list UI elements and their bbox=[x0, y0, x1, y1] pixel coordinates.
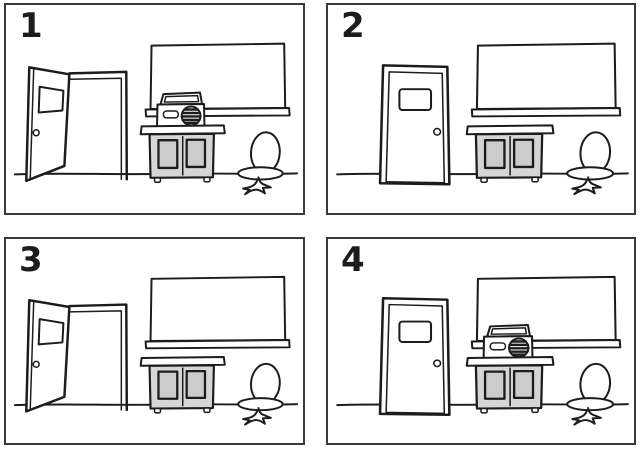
panel-4: 4 bbox=[326, 237, 636, 445]
cabinet-foot-left bbox=[155, 178, 161, 182]
doorknob bbox=[33, 130, 39, 136]
door-open bbox=[26, 67, 126, 180]
doorway-frame-outer bbox=[69, 72, 126, 179]
cabinet bbox=[467, 125, 554, 182]
cabinet-door-right bbox=[187, 140, 205, 167]
door-open bbox=[26, 300, 126, 411]
cabinet-door-left bbox=[158, 372, 177, 399]
cabinet-foot-left bbox=[481, 178, 487, 182]
panel-number: 3 bbox=[19, 241, 43, 280]
door-window bbox=[399, 322, 431, 342]
cabinet-door-left bbox=[158, 140, 177, 168]
doorway-frame-inner bbox=[69, 78, 121, 179]
tape-player bbox=[484, 325, 533, 360]
chalkboard-surface bbox=[477, 44, 616, 109]
panel-2: 2 bbox=[326, 3, 636, 215]
panel-number: 4 bbox=[341, 241, 365, 280]
cabinet-door-right bbox=[514, 371, 533, 398]
chalk-tray bbox=[472, 108, 620, 116]
cabinet-foot-left bbox=[481, 409, 487, 413]
panel-3: 3 bbox=[4, 237, 305, 445]
door-window bbox=[39, 319, 64, 344]
scene-drawing bbox=[6, 239, 303, 443]
cabinet-foot-right bbox=[532, 177, 538, 181]
panel-number: 2 bbox=[341, 7, 365, 46]
panel-number: 1 bbox=[19, 7, 43, 46]
cabinet-door-left bbox=[485, 372, 504, 399]
chair-seat bbox=[238, 167, 283, 179]
panel-1: 1 bbox=[4, 3, 305, 215]
cassette-slot bbox=[490, 343, 505, 350]
doorknob bbox=[434, 129, 441, 136]
swivel-chair bbox=[567, 363, 613, 425]
cabinet bbox=[141, 357, 225, 413]
chair-seat bbox=[567, 167, 613, 179]
doorknob bbox=[434, 360, 441, 366]
door-closed bbox=[380, 65, 449, 184]
cabinet-foot-right bbox=[532, 408, 538, 412]
chalk-tray bbox=[146, 340, 290, 348]
cabinet-foot-left bbox=[155, 409, 161, 413]
tape-player bbox=[157, 93, 205, 129]
swivel-chair bbox=[238, 363, 283, 425]
door-window bbox=[399, 89, 431, 110]
worksheet-figure: 1 bbox=[0, 0, 640, 453]
chair-seat bbox=[238, 398, 283, 410]
cabinet-door-right bbox=[187, 371, 205, 398]
cabinet-foot-right bbox=[204, 177, 210, 181]
chalkboard-surface bbox=[151, 277, 286, 341]
doorknob bbox=[33, 361, 39, 367]
swivel-chair bbox=[238, 131, 283, 194]
swivel-chair bbox=[567, 131, 613, 194]
cabinet bbox=[467, 357, 554, 413]
scene-drawing bbox=[328, 239, 634, 443]
door-leaf bbox=[380, 298, 449, 415]
scene-drawing bbox=[328, 5, 634, 213]
cabinet-door-right bbox=[514, 140, 533, 167]
door-closed bbox=[380, 298, 449, 415]
doorway-frame-outer bbox=[69, 305, 126, 410]
chalkboard bbox=[472, 44, 620, 117]
door-window bbox=[39, 87, 64, 113]
cassette-slot bbox=[163, 111, 178, 118]
scene-drawing bbox=[6, 5, 303, 213]
chalkboard bbox=[146, 277, 290, 348]
door-leaf bbox=[380, 65, 449, 184]
chair-seat bbox=[567, 398, 613, 410]
cabinet bbox=[141, 125, 225, 182]
cabinet-foot-right bbox=[204, 408, 210, 412]
cabinet-door-left bbox=[485, 140, 504, 168]
doorway-frame-inner bbox=[69, 311, 121, 410]
